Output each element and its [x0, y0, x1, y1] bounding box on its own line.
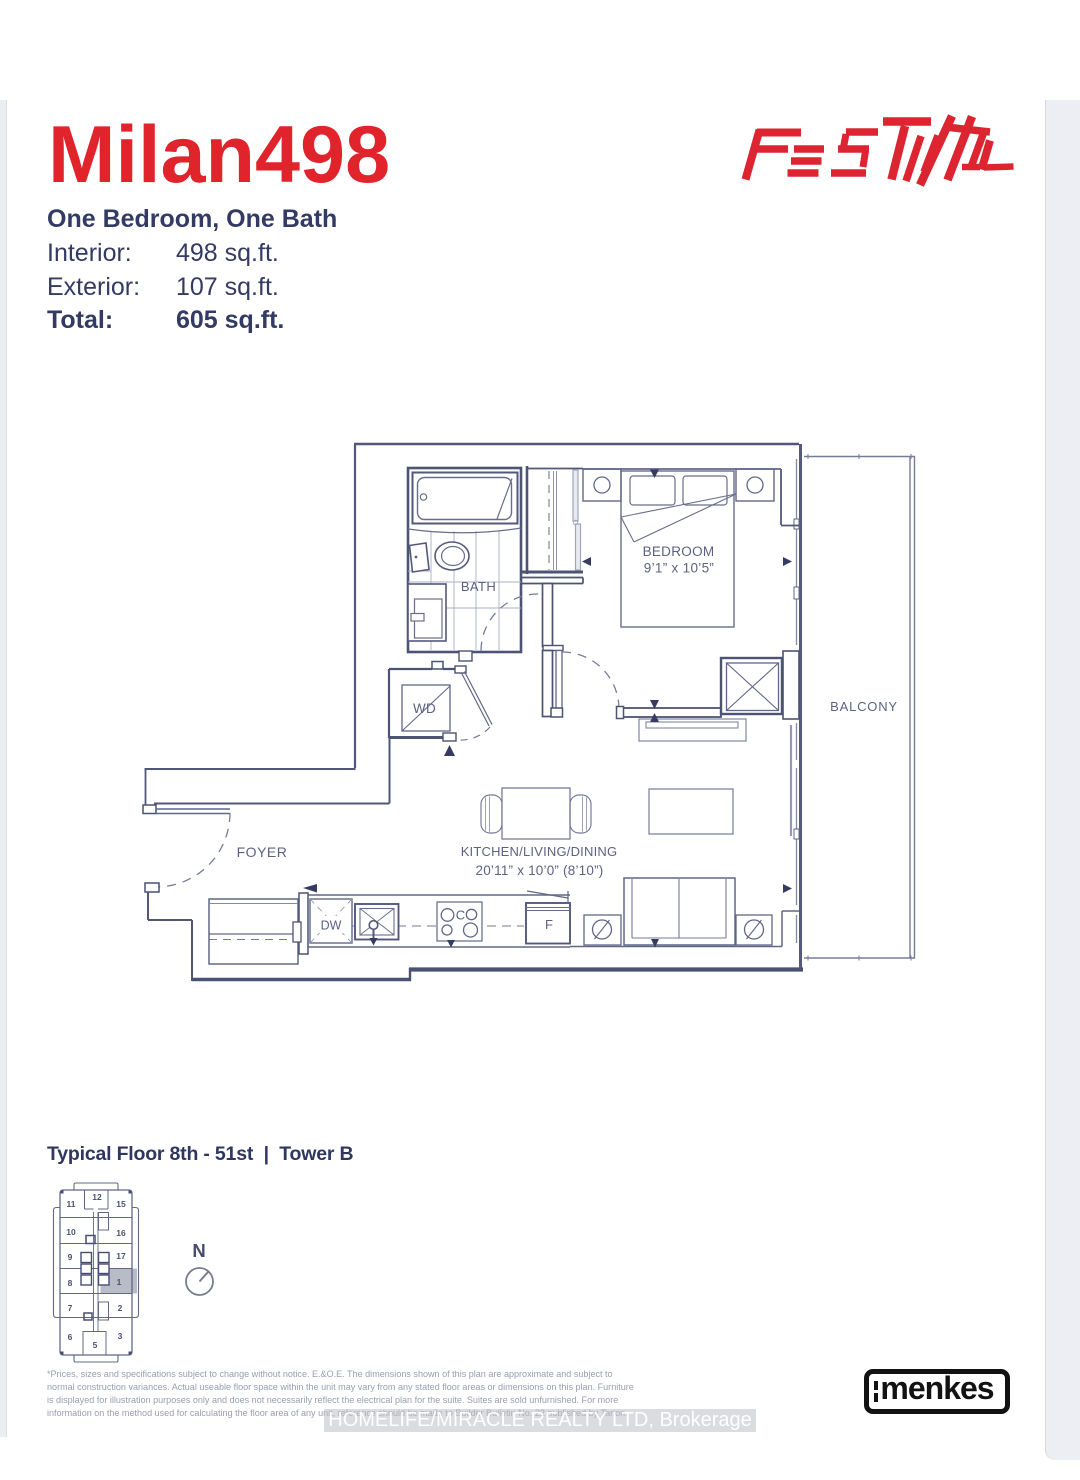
- svg-text:BATH: BATH: [461, 579, 496, 594]
- svg-text:15: 15: [116, 1199, 126, 1209]
- svg-text:12: 12: [92, 1192, 102, 1202]
- svg-text:8: 8: [68, 1278, 73, 1288]
- svg-text:10: 10: [66, 1227, 76, 1237]
- svg-text:2: 2: [118, 1303, 123, 1313]
- svg-text:7: 7: [68, 1303, 73, 1313]
- svg-text:DW: DW: [321, 919, 342, 933]
- svg-text:WD: WD: [413, 701, 436, 716]
- svg-text:9’1” x 10’5”: 9’1” x 10’5”: [644, 561, 714, 576]
- svg-text:20’11” x 10’0” (8’10”): 20’11” x 10’0” (8’10”): [476, 863, 604, 878]
- svg-text:F: F: [545, 917, 553, 932]
- svg-text:FOYER: FOYER: [237, 844, 288, 860]
- svg-text:1: 1: [117, 1277, 122, 1287]
- svg-text:17: 17: [116, 1251, 126, 1261]
- svg-text:BALCONY: BALCONY: [830, 699, 898, 714]
- svg-text:C: C: [456, 908, 465, 923]
- svg-text:N: N: [192, 1240, 205, 1261]
- svg-text:6: 6: [68, 1332, 73, 1342]
- svg-text:3: 3: [118, 1331, 123, 1341]
- svg-text:11: 11: [67, 1199, 76, 1209]
- svg-text:16: 16: [116, 1228, 126, 1238]
- svg-text:5: 5: [93, 1340, 98, 1350]
- svg-text:9: 9: [68, 1252, 73, 1262]
- svg-text:KITCHEN/LIVING/DINING: KITCHEN/LIVING/DINING: [461, 844, 618, 859]
- svg-text:BEDROOM: BEDROOM: [643, 544, 715, 559]
